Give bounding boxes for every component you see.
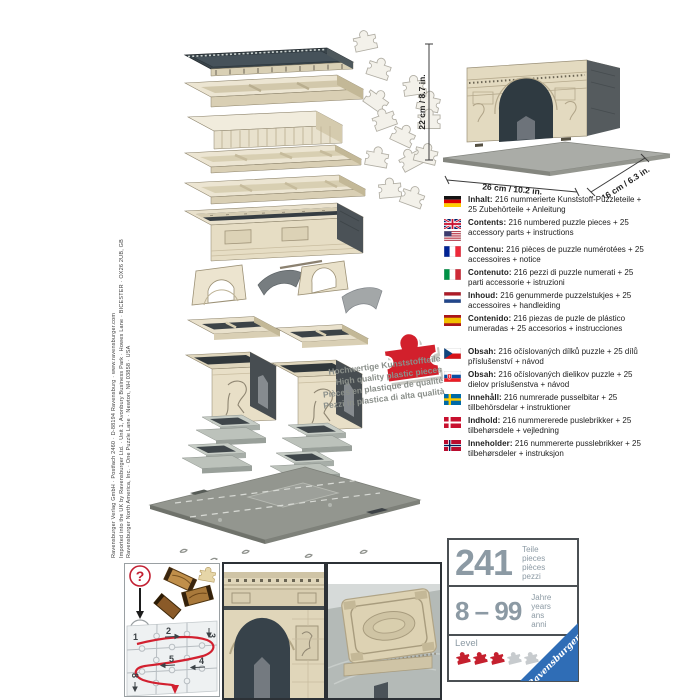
exploded-beam-frame-layer [185,145,361,173]
content-item-it: Contenuto: 216 pezzi di puzzle numerati … [444,268,670,287]
content-item-no: Inneholder: 216 nummererte pusslebrikker… [444,439,670,458]
exploded-tray-layer [185,75,363,107]
step-number: 8 [130,673,140,678]
flag-norway-icon [444,439,461,458]
assembly-help-panel: ? ! [124,563,220,697]
question-mark-icon: ? [136,568,145,584]
level-piece-icon [489,650,505,666]
level-piece-icon [472,650,488,666]
level-row: Level Ravensburger [449,636,577,680]
content-text: 216 nummerierte Kunststoff-Puzzleteile +… [468,195,641,214]
content-item-es: Contenido: 216 piezas de puzle de plásti… [444,314,670,333]
dimension-width: 26 cm / 10.2 in. [445,176,579,197]
assembled-arc-model [443,60,670,176]
content-label: Contenu: [468,245,504,254]
exploded-attic-block [185,203,363,261]
content-item-da: Indhold: 216 nummererede puslebrikker + … [444,416,670,435]
content-label: Contenuto: [468,268,512,277]
flag-czech-republic-icon [444,347,461,366]
imprint-line: Imported into the UK by Ravensburger Ltd… [119,162,127,558]
content-label: Obsah: [468,370,496,379]
exploded-step-bases [182,415,352,482]
content-item-nl: Inhoud: 216 genummerde puzzelstukjes + 2… [444,291,670,310]
imprint-line: Ravensburger Verlag GmbH · Postfach 2460… [111,162,119,558]
question-step: ? [130,566,150,586]
step-number: 1 [133,632,138,642]
content-label: Obsah: [468,347,496,356]
level-piece-icon [455,650,471,666]
flag-germany-icon [444,195,461,214]
exploded-roof-layer [185,48,353,76]
exploded-view-illustration [130,25,445,560]
piece-count: 241 [455,545,512,581]
content-label: Contenido: [468,314,511,323]
piece-count-row: 241 Teile pieces pièces pezzi [449,540,577,587]
exploded-base-plate [150,467,420,544]
content-label: Inneholder: [468,439,513,448]
content-label: Contents: [468,218,506,227]
flag-italy-icon [444,268,461,287]
flag-france-icon [444,245,461,264]
height-dimension-label: 22 cm / 8.7 in. [417,74,427,129]
content-item-fr: Contenu: 216 pièces de puzzle numérotées… [444,245,670,264]
down-arrow-icon [136,588,144,619]
content-item-en: Contents: 216 numbered puzzle pieces + 2… [444,218,670,241]
content-label: Inhoud: [468,291,498,300]
contents-list: Inhalt: 216 nummerierte Kunststoff-Puzzl… [444,195,670,462]
assembly-order-diagram: 1 2 3 4 5 8 [127,621,217,696]
step-number: 5 [169,654,174,664]
arch-roof-top [341,588,437,666]
flag-spain-icon [444,314,461,333]
info-box: 241 Teile pieces pièces pezzi 8 – 99 Jah… [447,538,579,682]
assembled-model-illustration: 22 cm / 8.7 in. 26 cm / 10.2 in. [415,30,700,198]
dimension-height: 22 cm / 8.7 in. [417,44,433,160]
photo-top-panel [326,562,442,700]
exploded-ring-frames [188,317,368,349]
exploded-clip-parts [180,549,367,560]
flag-sweden-icon [444,393,461,412]
exploded-frieze-layer [188,111,342,149]
step-number: 4 [199,656,204,666]
flag-netherlands-icon [444,291,461,310]
flag-us-icon [444,231,461,241]
content-label: Inhalt: [468,195,493,204]
content-item-de: Inhalt: 216 nummerierte Kunststoff-Puzzl… [444,195,670,214]
content-item-sv: Innehåll: 216 numrerade pusselbitar + 25… [444,393,670,412]
piece-count-labels: Teile pieces pièces pezzi [522,545,545,581]
age-range: 8 – 99 [455,598,521,624]
content-item-sk: Obsah: 216 očíslovaných dielikov puzzle … [444,370,670,389]
flag-slovakia-icon [444,370,461,389]
piece-photos [154,566,216,619]
content-label: Indhold: [468,416,500,425]
flag-uk-icon [444,219,461,229]
flag-denmark-icon [444,416,461,435]
step-number: 2 [166,626,171,636]
content-item-cs: Obsah: 216 očíslovaných dílků puzzle + 2… [444,347,670,366]
brand-ribbon: Ravensburger [520,623,578,681]
exploded-arch-pieces [192,261,382,313]
content-label: Innehåll: [468,393,502,402]
puzzle-box-back-panel: Ravensburger Verlag GmbH · Postfach 2460… [0,0,700,700]
depth-dimension-label: 16 cm / 6.3 in. [599,164,651,198]
exploded-beam-frame-layer [185,175,365,204]
photo-front-panel [222,562,326,700]
